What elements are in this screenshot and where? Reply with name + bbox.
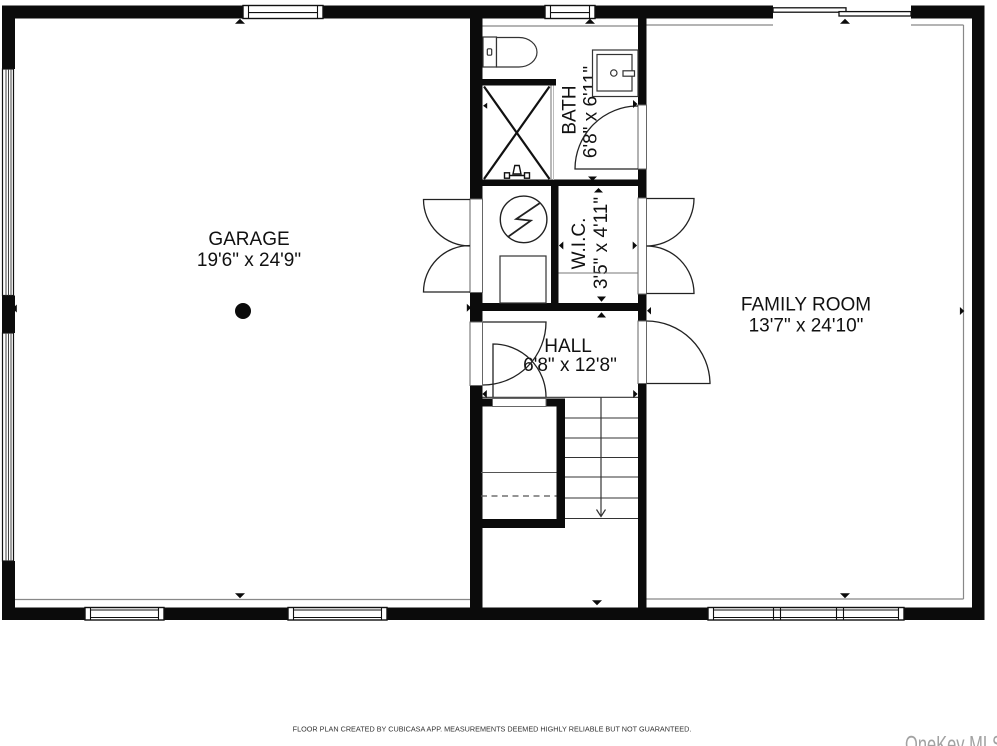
- svg-text:HALL: HALL: [544, 336, 592, 357]
- svg-text:W.I.C.: W.I.C.: [569, 218, 590, 270]
- svg-text:6'8" x 12'8": 6'8" x 12'8": [523, 355, 617, 376]
- svg-text:BATH: BATH: [560, 85, 581, 134]
- svg-text:GARAGE: GARAGE: [208, 229, 289, 250]
- svg-text:OneKey MLS: OneKey MLS: [905, 732, 997, 746]
- svg-text:FAMILY ROOM: FAMILY ROOM: [741, 295, 871, 316]
- svg-text:3'5" x 4'11": 3'5" x 4'11": [591, 197, 612, 289]
- svg-text:FLOOR PLAN CREATED BY CUBICASA: FLOOR PLAN CREATED BY CUBICASA APP. MEAS…: [293, 725, 692, 734]
- svg-text:13'7" x 24'10": 13'7" x 24'10": [749, 316, 864, 337]
- svg-text:19'6" x 24'9": 19'6" x 24'9": [197, 250, 301, 271]
